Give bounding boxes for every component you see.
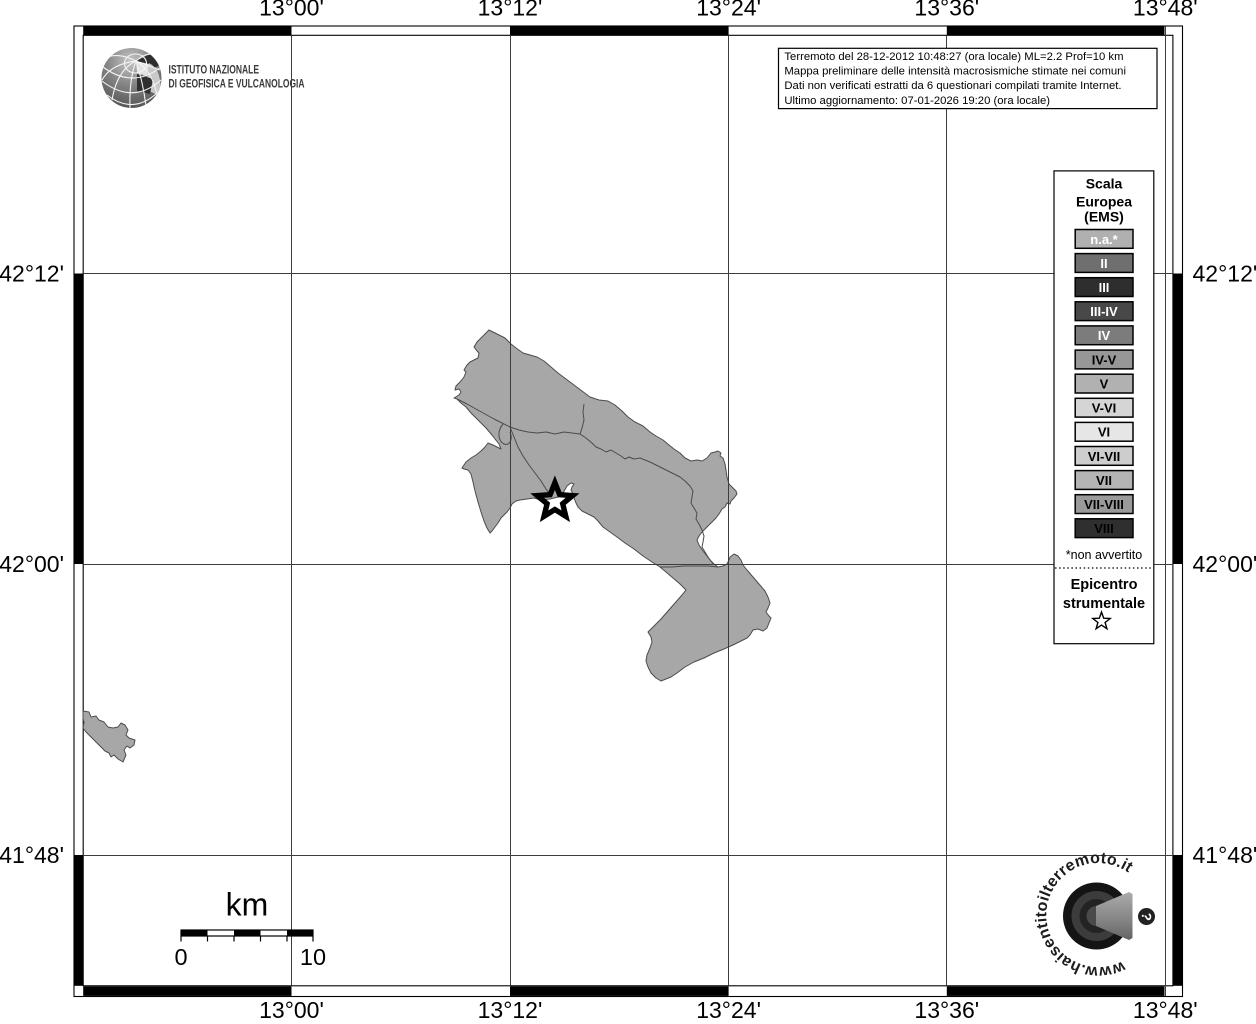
svg-text:VIII: VIII: [1094, 521, 1114, 536]
svg-text:41°48': 41°48': [1193, 842, 1256, 868]
svg-text:strumentale: strumentale: [1063, 596, 1145, 612]
svg-text:VII: VII: [1096, 473, 1112, 488]
svg-text:II: II: [1100, 256, 1107, 271]
svg-text:VI: VI: [1098, 425, 1110, 440]
svg-text:III-IV: III-IV: [1090, 304, 1118, 319]
svg-text:13°48': 13°48': [1133, 0, 1198, 20]
svg-text:Europea: Europea: [1076, 194, 1132, 210]
svg-text:km: km: [226, 887, 269, 923]
svg-text:13°36': 13°36': [914, 0, 979, 20]
svg-text:(EMS): (EMS): [1084, 209, 1124, 225]
svg-text:VII-VIII: VII-VIII: [1084, 497, 1124, 512]
svg-text:IV: IV: [1098, 328, 1111, 343]
svg-text:13°24': 13°24': [696, 997, 761, 1023]
svg-text:13°48': 13°48': [1133, 997, 1198, 1023]
svg-text:13°00': 13°00': [259, 997, 324, 1023]
svg-text:VI-VII: VI-VII: [1088, 449, 1121, 464]
svg-text:III: III: [1099, 280, 1110, 295]
svg-text:Scala: Scala: [1086, 176, 1123, 192]
svg-text:Terremoto del 28-12-2012 10:48: Terremoto del 28-12-2012 10:48:27 (ora l…: [784, 51, 1123, 63]
svg-text:13°12': 13°12': [478, 997, 543, 1023]
svg-text:Dati non verificati estratti d: Dati non verificati estratti da 6 questi…: [784, 80, 1121, 92]
svg-text:DI GEOFISICA E VULCANOLOGIA: DI GEOFISICA E VULCANOLOGIA: [169, 79, 305, 91]
svg-text:V: V: [1100, 377, 1109, 392]
svg-text:13°36': 13°36': [914, 997, 979, 1023]
svg-text:42°00': 42°00': [0, 551, 64, 577]
svg-text:n.a.*: n.a.*: [1090, 232, 1118, 247]
svg-text:42°00': 42°00': [1193, 551, 1256, 577]
svg-text:IV-V: IV-V: [1092, 352, 1117, 367]
svg-text:*non avvertito: *non avvertito: [1066, 548, 1142, 562]
svg-text:42°12': 42°12': [1193, 261, 1256, 287]
svg-text:13°12': 13°12': [478, 0, 543, 20]
svg-text:42°12': 42°12': [0, 261, 64, 287]
svg-text:10: 10: [300, 944, 326, 970]
svg-text:13°24': 13°24': [696, 0, 761, 20]
svg-text:Epicentro: Epicentro: [1071, 577, 1138, 593]
svg-text:Mappa preliminare delle intens: Mappa preliminare delle intensità macros…: [784, 66, 1126, 78]
svg-text:ISTITUTO NAZIONALE: ISTITUTO NAZIONALE: [169, 65, 260, 77]
svg-text:13°00': 13°00': [259, 0, 324, 20]
svg-text:V-VI: V-VI: [1092, 401, 1117, 416]
svg-text:Ultimo aggiornamento: 07-01-20: Ultimo aggiornamento: 07-01-2026 19:20 (…: [784, 95, 1050, 107]
svg-text:0: 0: [174, 944, 187, 970]
svg-text:41°48': 41°48': [0, 842, 64, 868]
